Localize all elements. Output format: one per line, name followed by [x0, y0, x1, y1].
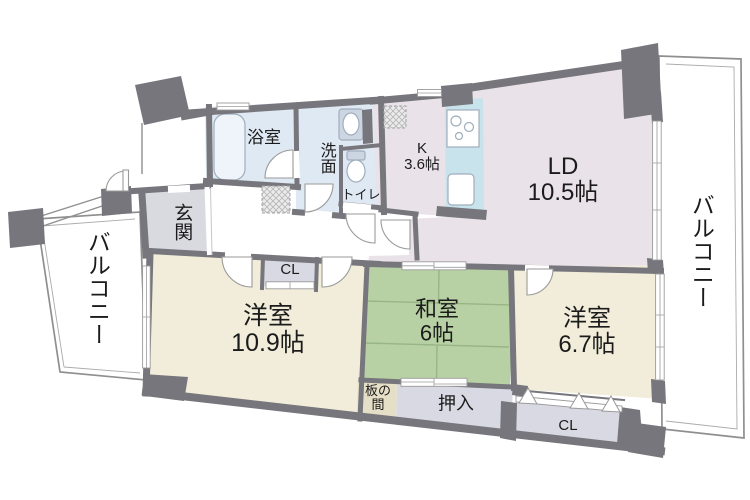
room-label-entrance: 玄関: [171, 203, 192, 241]
room-label-kitchen: K3.6帖: [404, 141, 440, 173]
room-label-bath: 浴室: [247, 129, 281, 147]
door-arc-entrance: [106, 170, 129, 191]
wall-stub: [362, 109, 373, 144]
window-bath: [217, 103, 249, 110]
column: [8, 208, 45, 248]
room-label-western-a: 洋室10.9帖: [231, 303, 305, 357]
wall-stub: [650, 92, 663, 124]
wall-stub: [500, 401, 517, 441]
wall-stub: [617, 407, 643, 448]
room-label-balcony-right: バルコニー: [689, 194, 714, 309]
floorplan-drawing: [0, 0, 750, 500]
window-east-ld: [653, 121, 662, 260]
room-label-toilet: トイレ: [341, 188, 380, 202]
room-label-washroom: 洗面: [317, 142, 334, 174]
column: [143, 374, 188, 401]
sliding-door-japanese: [402, 262, 466, 270]
sliding-door-closet-hall: [266, 282, 314, 289]
entrance-step-line: [207, 187, 212, 255]
room-label-western-b: 洋室6.7帖: [558, 306, 615, 358]
toilet-bowl-icon: [347, 160, 365, 182]
kitchen-sink-icon: [448, 174, 474, 205]
room-label-itanoma: 板の間: [365, 384, 391, 412]
room-label-ld: LD10.5帖: [528, 154, 599, 206]
counter-wall-stub: [441, 83, 473, 107]
window-east-western-b: [656, 274, 665, 380]
wall-stub: [647, 258, 664, 275]
stove-icon: [447, 110, 479, 147]
wall-stub: [651, 379, 666, 404]
sliding-door-oshiire: [401, 378, 467, 386]
floorplan-canvas: 浴室 洗面 トイレ 玄関 K3.6帖 LD10.5帖 洋室10.9帖 和室6帖 …: [0, 0, 750, 500]
washbasin-bowl-icon: [343, 113, 359, 135]
room-label-balcony-left: バルコニー: [85, 231, 110, 346]
room-label-oshiire: 押入: [438, 394, 474, 413]
door-arc-hall-ld: [381, 220, 410, 249]
room-label-closet-hall: CL: [280, 262, 299, 278]
door-arc-toilet: [346, 214, 375, 243]
bathtub-icon: [214, 114, 245, 180]
window-kitchen: [418, 90, 442, 97]
window-west: [143, 266, 151, 368]
room-label-closet-bedroom: CL: [558, 418, 577, 434]
toilet-tank-icon: [347, 151, 365, 160]
room-label-japanese: 和室6帖: [415, 297, 459, 345]
pipe-space-icon: [384, 106, 406, 128]
pipe-space-icon: [262, 186, 290, 213]
